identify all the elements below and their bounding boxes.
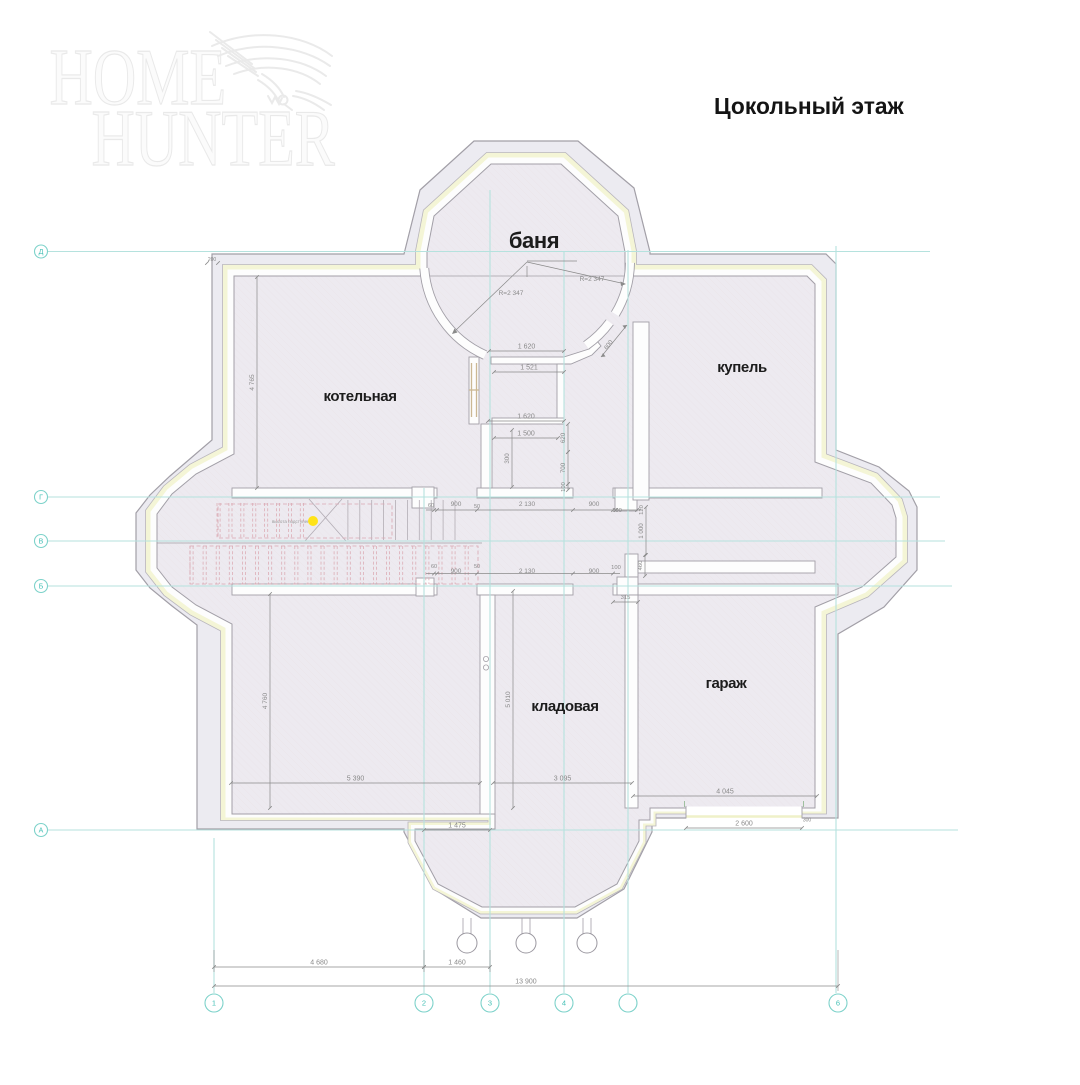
svg-text:100: 100 <box>561 482 567 492</box>
svg-text:кладовая: кладовая <box>531 698 598 715</box>
svg-text:1 500: 1 500 <box>517 431 535 438</box>
svg-text:900: 900 <box>451 501 462 508</box>
svg-text:R=2 347: R=2 347 <box>499 290 524 297</box>
svg-text:5 390: 5 390 <box>347 776 365 783</box>
svg-text:5 010: 5 010 <box>505 691 512 708</box>
svg-text:4 760: 4 760 <box>262 692 269 709</box>
svg-text:4 765: 4 765 <box>249 374 256 391</box>
svg-text:HUNTER: HUNTER <box>92 95 336 183</box>
svg-text:2 600: 2 600 <box>735 821 753 828</box>
svg-text:Г: Г <box>39 495 43 502</box>
svg-text:баня: баня <box>509 228 559 253</box>
svg-text:Б: Б <box>39 584 44 591</box>
svg-text:1 521: 1 521 <box>520 365 538 372</box>
svg-text:50: 50 <box>474 564 480 570</box>
svg-text:900: 900 <box>451 568 462 575</box>
svg-text:1 620: 1 620 <box>517 414 535 421</box>
svg-text:2: 2 <box>422 999 426 1008</box>
svg-text:1: 1 <box>212 999 216 1008</box>
svg-text:100: 100 <box>611 565 621 571</box>
svg-text:Цокольный этаж: Цокольный этаж <box>714 93 905 119</box>
svg-text:3: 3 <box>488 999 492 1008</box>
svg-text:460: 460 <box>638 561 644 571</box>
svg-text:В: В <box>39 539 44 546</box>
svg-text:Д: Д <box>39 249 44 256</box>
svg-text:4 045: 4 045 <box>716 789 734 796</box>
svg-text:2 130: 2 130 <box>519 501 536 508</box>
svg-text:60: 60 <box>428 503 434 509</box>
svg-text:котельная: котельная <box>323 388 396 405</box>
svg-text:4 680: 4 680 <box>310 960 328 967</box>
svg-text:60: 60 <box>431 564 437 570</box>
svg-text:1 460: 1 460 <box>448 960 466 967</box>
svg-text:200: 200 <box>208 257 217 263</box>
svg-text:50: 50 <box>474 504 480 510</box>
svg-text:900: 900 <box>589 568 600 575</box>
svg-text:6: 6 <box>836 999 840 1008</box>
svg-text:1 000: 1 000 <box>638 523 645 539</box>
svg-text:3 095: 3 095 <box>554 776 572 783</box>
svg-text:1 475: 1 475 <box>448 823 466 830</box>
svg-text:120: 120 <box>639 505 645 515</box>
svg-text:2 130: 2 130 <box>519 568 536 575</box>
svg-text:купель: купель <box>717 359 767 376</box>
svg-text:315: 315 <box>621 595 631 601</box>
svg-text:4: 4 <box>562 999 566 1008</box>
svg-text:R=2 347: R=2 347 <box>580 276 605 283</box>
svg-text:13 900: 13 900 <box>515 979 537 986</box>
svg-text:100: 100 <box>612 508 622 514</box>
svg-text:700: 700 <box>560 462 567 473</box>
svg-text:А: А <box>39 828 44 835</box>
svg-text:300: 300 <box>803 818 812 824</box>
svg-text:1 620: 1 620 <box>518 344 536 351</box>
svg-text:300: 300 <box>504 453 511 464</box>
svg-text:гараж: гараж <box>706 675 747 692</box>
svg-text:900: 900 <box>589 501 600 508</box>
svg-text:620: 620 <box>560 432 567 443</box>
